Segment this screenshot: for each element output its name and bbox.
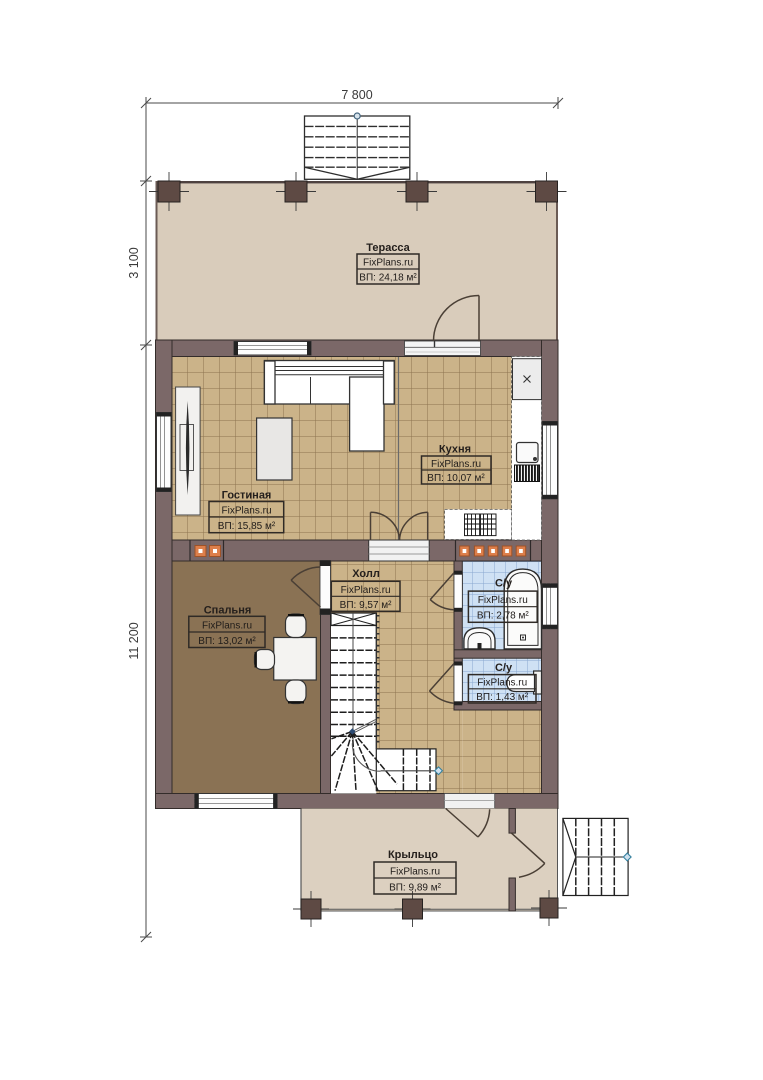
svg-text:ВП: 10,07 м²: ВП: 10,07 м² <box>427 473 485 484</box>
svg-text:3 100: 3 100 <box>127 247 141 278</box>
svg-text:Гостиная: Гостиная <box>222 490 272 502</box>
svg-text:FixPlans.ru: FixPlans.ru <box>477 678 527 689</box>
svg-text:FixPlans.ru: FixPlans.ru <box>341 585 391 596</box>
svg-text:Спальня: Спальня <box>204 605 252 617</box>
svg-text:ВП: 15,85 м²: ВП: 15,85 м² <box>218 521 276 532</box>
svg-text:7 800: 7 800 <box>341 88 372 102</box>
svg-text:FixPlans.ru: FixPlans.ru <box>363 258 413 269</box>
svg-text:ВП: 1,43 м²: ВП: 1,43 м² <box>476 692 529 703</box>
svg-text:FixPlans.ru: FixPlans.ru <box>202 620 252 631</box>
svg-text:FixPlans.ru: FixPlans.ru <box>431 459 481 470</box>
svg-text:Кухня: Кухня <box>439 444 471 456</box>
svg-text:FixPlans.ru: FixPlans.ru <box>221 506 271 517</box>
svg-text:Холл: Холл <box>352 568 380 580</box>
svg-text:ВП: 13,02 м²: ВП: 13,02 м² <box>198 636 256 647</box>
svg-text:ВП: 2,78 м²: ВП: 2,78 м² <box>477 611 530 622</box>
svg-text:ВП: 9,57 м²: ВП: 9,57 м² <box>340 600 393 611</box>
svg-text:FixPlans.ru: FixPlans.ru <box>478 595 528 606</box>
svg-text:ВП: 24,18 м²: ВП: 24,18 м² <box>359 273 417 284</box>
svg-text:FixPlans.ru: FixPlans.ru <box>390 867 440 878</box>
svg-text:ВП: 9,89 м²: ВП: 9,89 м² <box>389 883 442 894</box>
svg-text:С/у: С/у <box>495 578 513 590</box>
svg-text:Крыльцо: Крыльцо <box>388 849 438 861</box>
svg-text:11 200: 11 200 <box>127 622 141 659</box>
svg-text:С/у: С/у <box>495 662 513 674</box>
svg-text:Терасса: Терасса <box>366 242 410 254</box>
